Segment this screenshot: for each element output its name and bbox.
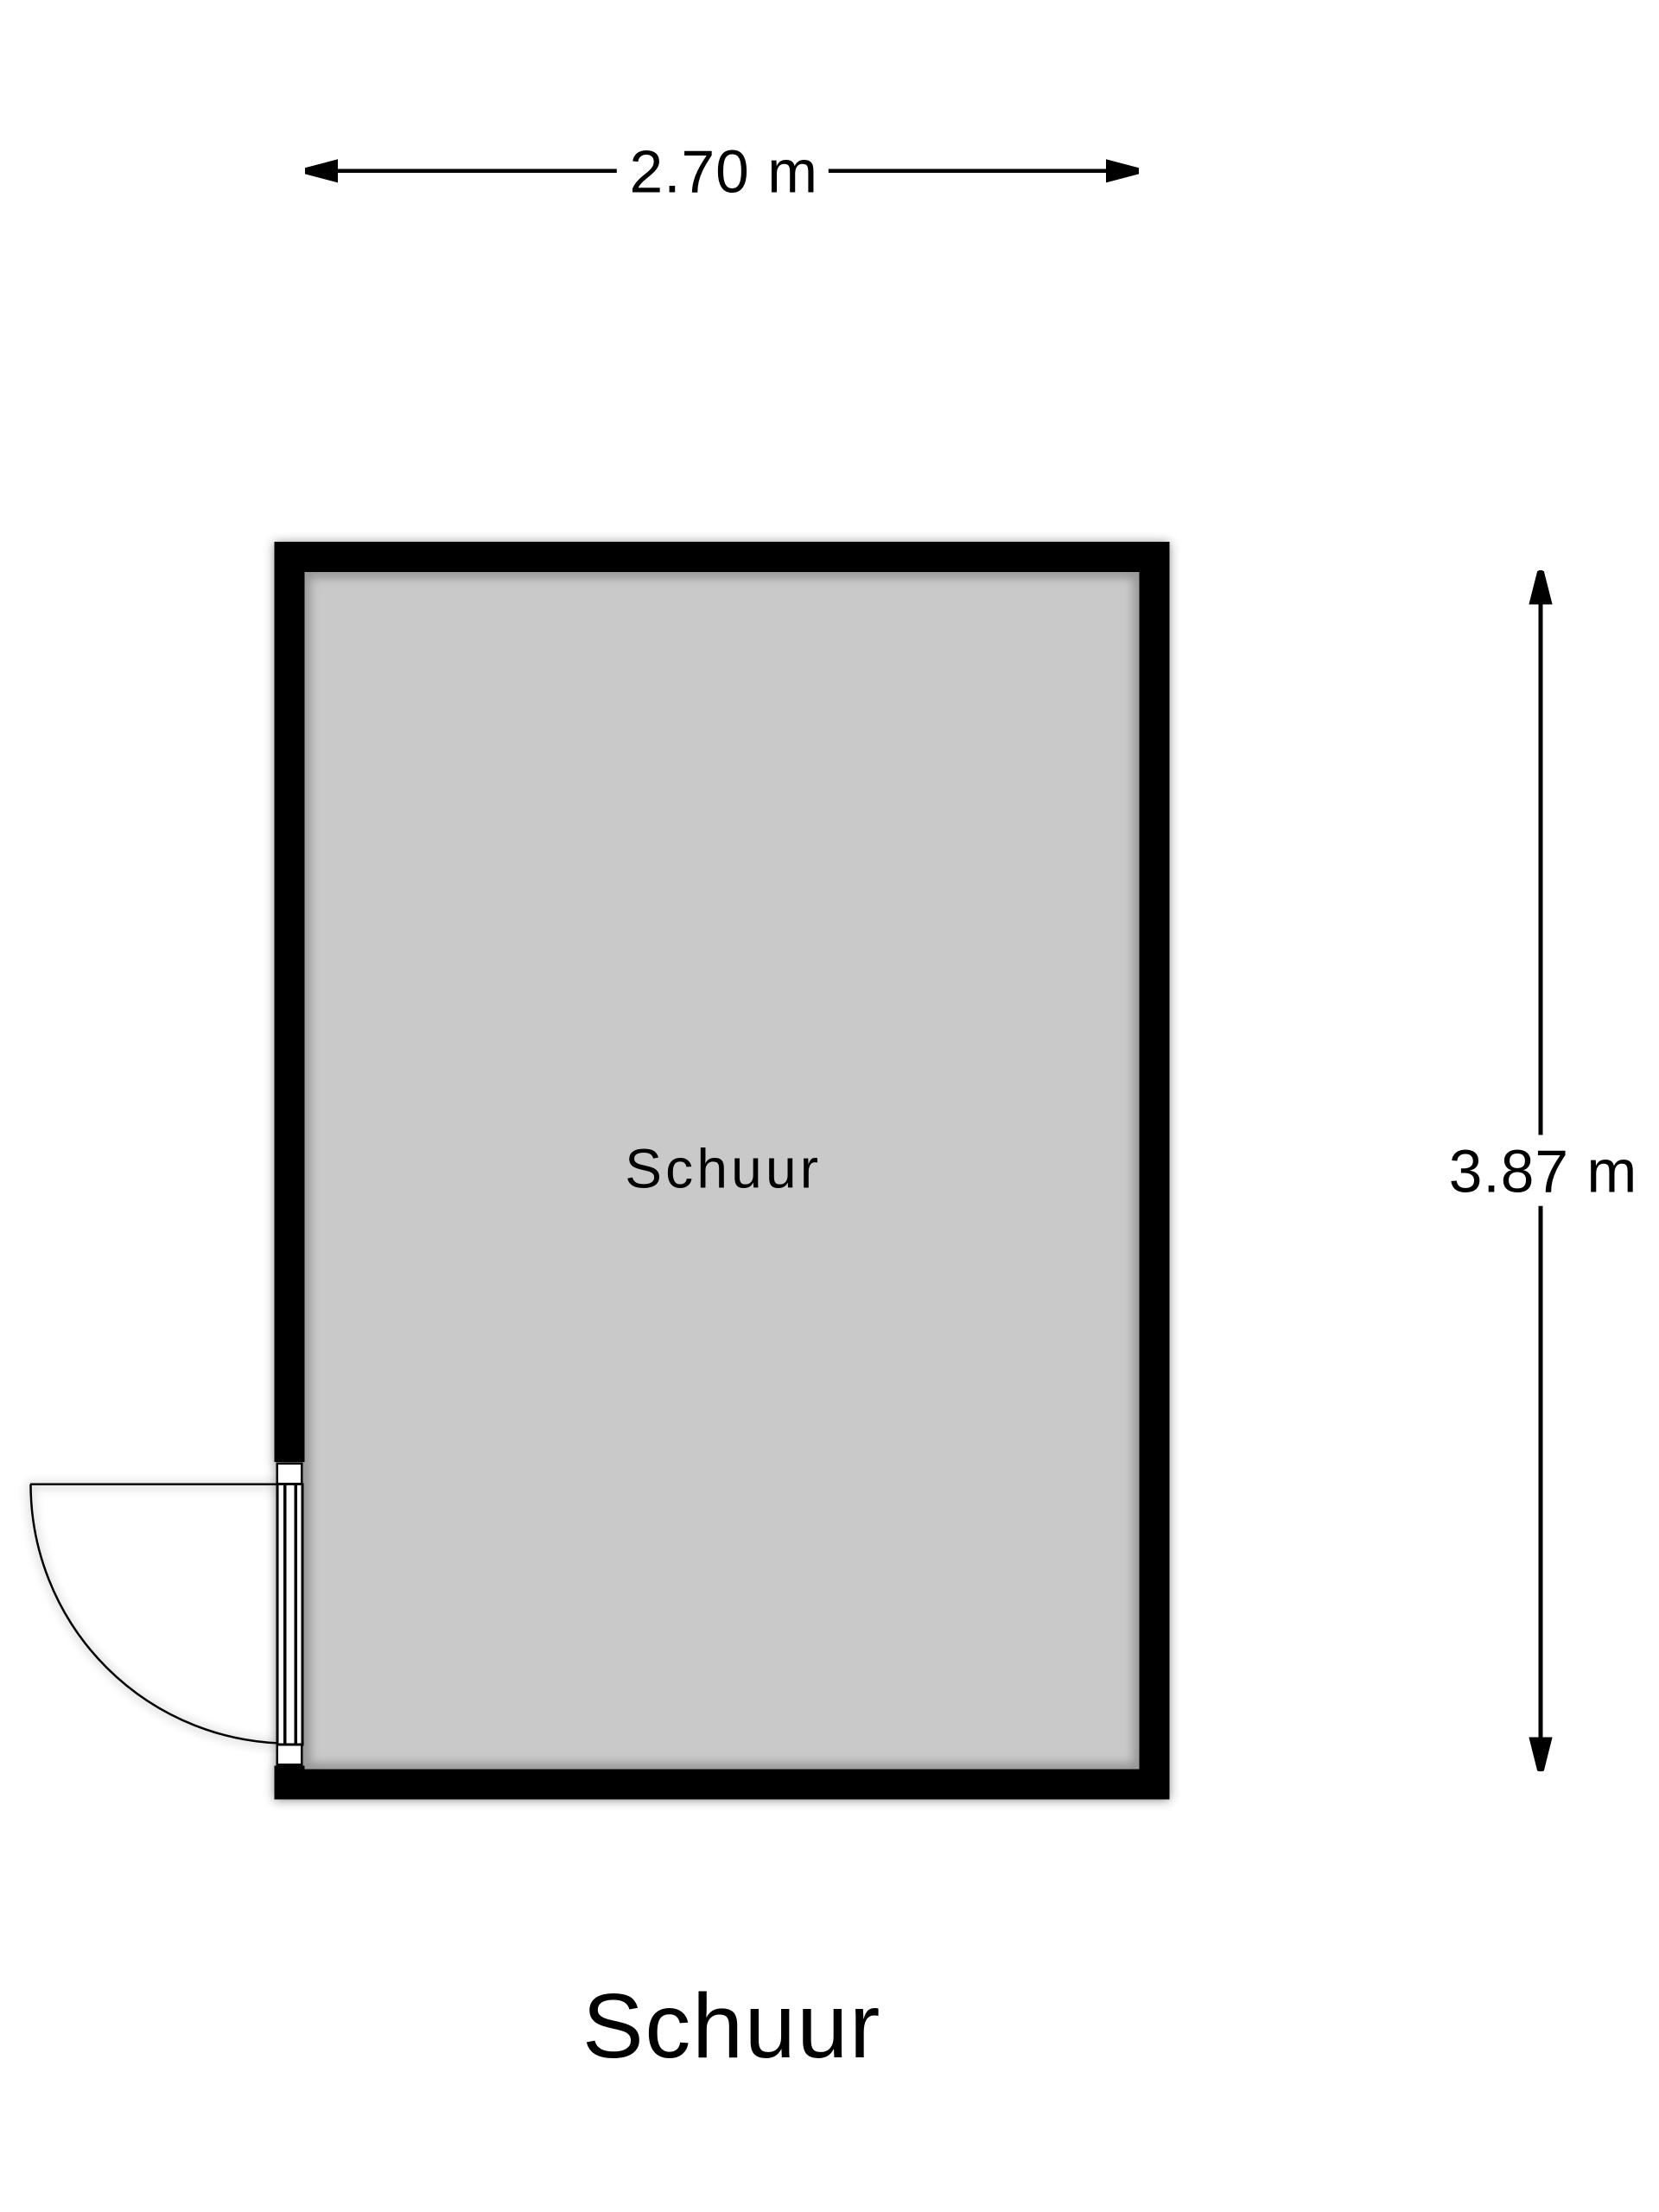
svg-text:2.70 m: 2.70 m	[630, 138, 818, 206]
svg-text:Schuur: Schuur	[625, 1137, 822, 1199]
svg-text:3.87 m: 3.87 m	[1449, 1138, 1637, 1205]
svg-text:Schuur: Schuur	[582, 1975, 881, 2077]
